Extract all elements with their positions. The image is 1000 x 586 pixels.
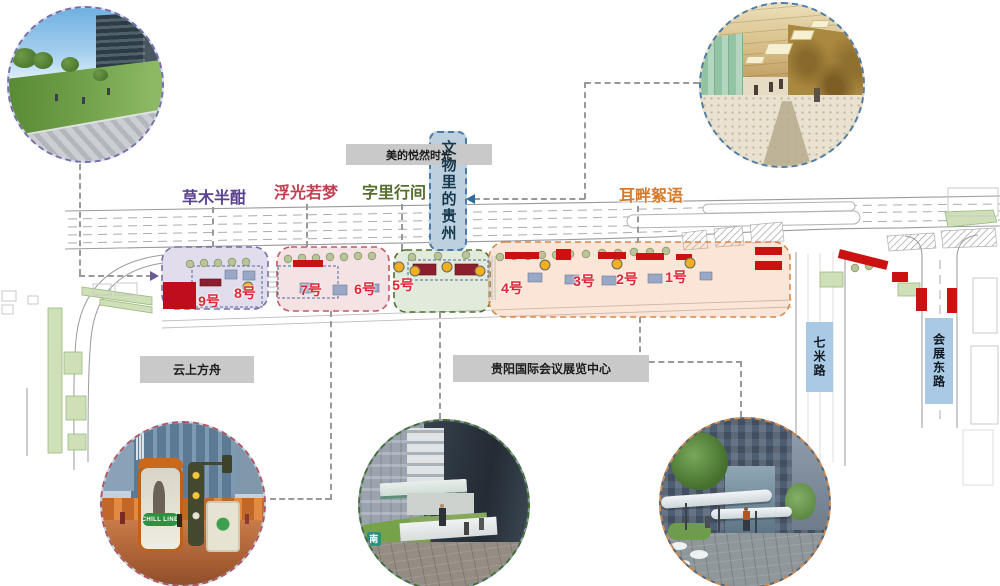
plaza-traffic-light-art <box>188 462 204 546</box>
streetmid-facade-panels <box>407 428 444 485</box>
photo-corridor <box>699 2 865 168</box>
pointer-line-fuguang <box>306 204 308 247</box>
corridor-light <box>745 56 766 64</box>
connector-corridor-arrowhead <box>466 194 475 204</box>
streetright-canopy-leg <box>685 503 687 530</box>
pointer-line-zili <box>401 204 403 250</box>
callout-convention-center: 贵阳国际会议展览中心 <box>453 355 649 382</box>
stall-label-9: 9号 <box>198 291 220 311</box>
connector-corridor-h1 <box>585 82 699 84</box>
connector-corridor-h2 <box>474 198 585 200</box>
streetmid-person <box>479 518 484 530</box>
road-label-huizhandonglu: 会展东路 <box>925 318 953 404</box>
callout-yunshang: 云上方舟 <box>140 356 254 383</box>
callout-meide: 美的悦然时光 <box>346 144 492 165</box>
stall-label-6: 6号 <box>354 279 376 299</box>
plaza-barrel-booth <box>206 501 241 552</box>
corridor-light <box>764 43 793 55</box>
zone-title-caomu: 草木半酣 <box>182 184 246 208</box>
plaza-capsule-sign: CHILL LINE <box>143 513 178 527</box>
streetright-person <box>705 516 710 528</box>
connector-park-arrowhead <box>150 271 159 281</box>
photo-plaza: CHILL LINE <box>100 421 266 586</box>
corridor-light <box>790 30 815 40</box>
plaza-person <box>120 512 125 524</box>
stall-label-7: 7号 <box>300 280 322 300</box>
photo-park <box>7 6 164 163</box>
poster-canvas: 美的悦然时光 文物里的贵州 云上方舟 贵阳国际会议展览中心 草木半酣 浮光若梦 … <box>0 0 1000 586</box>
highlight-block <box>163 282 196 309</box>
pointer-line-caomu <box>212 207 214 247</box>
streetmid-person <box>439 508 446 526</box>
plaza-person <box>177 514 182 527</box>
connector-streetright-v2 <box>740 361 742 417</box>
stall-label-8: 8号 <box>234 283 256 303</box>
stall-label-5: 5号 <box>392 275 414 295</box>
streetmid-pavement <box>360 542 528 586</box>
connector-corridor-vertical <box>584 82 586 199</box>
plaza-traffic-light-head <box>222 455 232 473</box>
plaza-lamp <box>139 431 141 459</box>
stall-label-3: 3号 <box>573 271 595 291</box>
plaza-capsule-figure <box>153 481 165 517</box>
streetright-seat-stone <box>671 542 687 550</box>
plaza-building-left <box>102 442 134 491</box>
vertical-banner-label: 文物里的贵州 <box>429 131 467 251</box>
plaza-capsule-booth: CHILL LINE <box>138 465 183 552</box>
pointer-line-erpan <box>637 206 639 243</box>
connector-plaza-horizontal <box>270 498 331 500</box>
streetright-canopy-leg <box>718 506 720 531</box>
corridor-light <box>810 20 831 28</box>
park-person <box>82 97 85 104</box>
streetmid-logo-badge: 南 <box>367 532 381 546</box>
connector-streetright-horizontal <box>639 361 742 363</box>
corridor-person <box>814 88 820 102</box>
road-label-qimilu: 七米路 <box>806 322 833 392</box>
corridor-person <box>779 79 783 89</box>
stall-label-4: 4号 <box>501 278 523 298</box>
connector-streetmid-vertical <box>439 312 441 419</box>
plaza-building-right <box>235 436 264 494</box>
zone-title-erpan: 耳畔絮语 <box>619 182 683 206</box>
corridor-person <box>754 85 758 95</box>
zone-title-zili: 字里行间 <box>362 179 426 203</box>
park-person <box>55 94 58 101</box>
corridor-person <box>769 82 773 92</box>
connector-park-vertical <box>79 164 81 275</box>
zone-title-fuguang: 浮光若梦 <box>274 179 338 203</box>
streetright-person <box>743 511 750 531</box>
photo-street-right <box>659 417 831 586</box>
streetmid-person <box>464 522 469 535</box>
connector-plaza-vertical <box>330 311 332 500</box>
plaza-person <box>245 514 249 524</box>
streetright-seat-stone <box>690 550 708 559</box>
streetright-tree <box>671 432 728 489</box>
park-person <box>107 88 110 95</box>
photo-street-mid: 南 <box>358 419 530 586</box>
stall-label-1: 1号 <box>665 267 687 287</box>
connector-park-horizontal <box>79 275 152 277</box>
streetright-canopy-leg <box>755 511 757 533</box>
stall-label-2: 2号 <box>616 269 638 289</box>
